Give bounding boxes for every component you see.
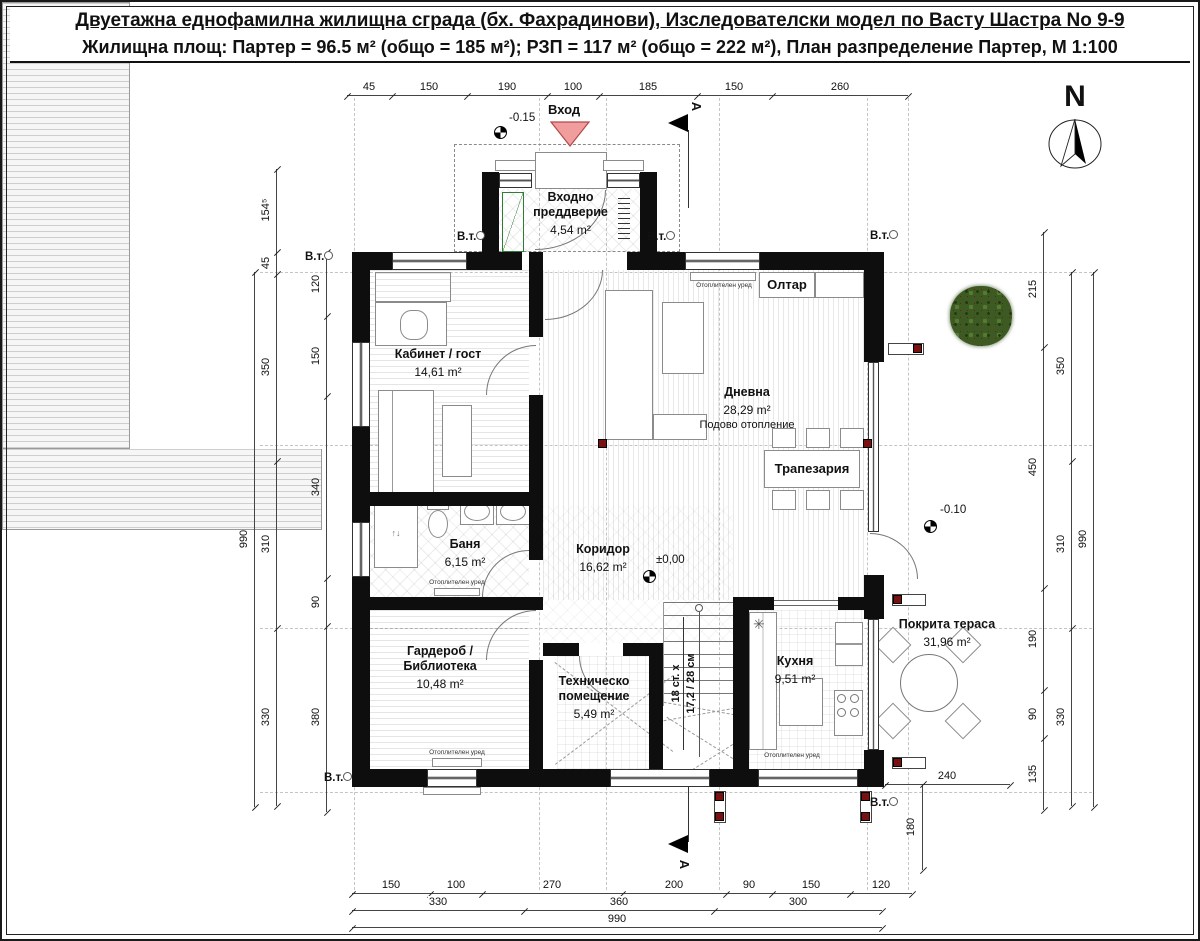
section-arrow-icon	[668, 835, 688, 853]
dim-label: 340	[310, 478, 322, 496]
dim-label: 380	[310, 708, 322, 726]
level-marker-icon	[494, 126, 507, 139]
dim-label: 240	[937, 770, 957, 782]
vt-circle-icon	[343, 772, 352, 781]
room-label-cabinet: Кабинет / гост 14,61 m²	[383, 347, 493, 379]
dining-chair	[772, 490, 796, 510]
sink-symbol-icon: ✳	[753, 616, 765, 633]
vt-marker: В.т.	[305, 251, 333, 263]
wall	[838, 597, 864, 610]
dim-label: 90	[1027, 708, 1039, 720]
entrance-label: Вход	[548, 102, 580, 117]
wall	[352, 597, 543, 610]
dim-label: 350	[1055, 357, 1067, 375]
vt-marker: В.т.	[647, 231, 675, 243]
dim-label: 360	[609, 896, 629, 908]
radiator	[434, 588, 480, 596]
wall	[529, 395, 543, 494]
desk-chair	[400, 310, 428, 340]
north-compass-icon	[1047, 116, 1103, 172]
north-compass: N	[1040, 82, 1110, 177]
radiator	[690, 272, 756, 281]
wall	[760, 252, 864, 270]
dim-line-left-mid	[276, 169, 277, 806]
terrace-table	[900, 654, 958, 712]
coffee-table	[662, 302, 704, 374]
dining-chair	[806, 490, 830, 510]
stairs-note-line1: 18 ст. x	[670, 617, 684, 750]
window	[685, 252, 760, 270]
radiator-label: Отоплителен уред	[764, 752, 820, 759]
dim-label: 215	[1027, 280, 1039, 298]
vt-marker: В.т.	[870, 797, 898, 809]
dim-line-bottom-3	[352, 927, 882, 928]
window	[499, 173, 532, 188]
dim-label: 150	[801, 879, 821, 891]
dim-label: 260	[830, 81, 850, 93]
wall	[352, 769, 427, 787]
burner	[850, 708, 859, 717]
window	[610, 769, 710, 787]
dim-label: 990	[607, 913, 627, 925]
pass-through	[774, 600, 838, 606]
altar-box: Олтар	[759, 272, 815, 298]
level-label: -0.15	[509, 112, 535, 124]
dim-label: 990	[238, 530, 250, 548]
wall	[529, 506, 543, 560]
window	[758, 769, 858, 787]
radiator	[432, 758, 482, 767]
radiator-label: Отоплителен уред	[696, 282, 752, 289]
dim-label: 150	[419, 81, 439, 93]
dim-line-left-inner	[326, 252, 327, 812]
dim-label: 45	[362, 81, 376, 93]
burner	[837, 694, 846, 703]
dim-label: 150	[310, 347, 322, 365]
dim-label: 154⁵	[260, 199, 272, 222]
dim-label: 190	[1027, 630, 1039, 648]
vt-circle-icon	[666, 231, 675, 240]
dim-label: 330	[260, 708, 272, 726]
grid-line	[908, 98, 909, 890]
drawing-sheet: Двуетажна еднофамилна жилищна сграда (бх…	[0, 0, 1200, 941]
wall	[864, 575, 884, 619]
wall	[864, 252, 884, 362]
sofa-line	[392, 391, 393, 493]
column-red	[715, 812, 724, 821]
dining-chair	[772, 428, 796, 448]
toilet-bowl	[428, 510, 448, 538]
room-label-tech: Техническо помещение 5,49 m²	[550, 674, 638, 721]
column-red	[893, 595, 902, 604]
room-label-vestibule: Входно преддверие 4,54 m²	[518, 190, 623, 237]
wall	[710, 769, 758, 787]
column-red	[861, 812, 870, 821]
dim-label: 100	[563, 81, 583, 93]
wall	[627, 252, 685, 270]
dim-line-top	[347, 95, 908, 96]
desk	[375, 272, 451, 302]
window-sill	[603, 160, 644, 171]
dim-line-bottom-2	[352, 910, 882, 911]
burner	[850, 694, 859, 703]
sheet-title: Двуетажна еднофамилна жилищна сграда (бх…	[10, 7, 1190, 34]
dim-label: 90	[742, 879, 756, 891]
column-red	[715, 792, 724, 801]
level-label: ±0,00	[656, 554, 685, 566]
wall	[733, 597, 774, 610]
window-sill	[495, 160, 536, 171]
wall	[543, 643, 579, 656]
window	[352, 342, 370, 427]
dim-label: 990	[1077, 530, 1089, 548]
dim-label: 45	[260, 257, 272, 269]
dining-chair	[806, 428, 830, 448]
vt-circle-icon	[889, 230, 898, 239]
burner	[837, 708, 846, 717]
column-red	[893, 758, 902, 767]
level-marker-icon	[924, 520, 937, 533]
door-arc-terrace	[870, 533, 918, 579]
radiator-label: Отоплителен уред	[429, 579, 485, 586]
dim-label: 310	[260, 535, 272, 553]
room-label-corridor: Коридор 16,62 m²	[567, 542, 639, 574]
dim-label: 450	[1027, 458, 1039, 476]
window	[607, 173, 640, 188]
column-red	[861, 792, 870, 801]
terrace-floor	[2, 2, 130, 449]
dim-line-right-outer	[1093, 272, 1094, 807]
vt-circle-icon	[889, 797, 898, 806]
north-label: N	[1040, 82, 1110, 112]
dim-label: 190	[497, 81, 517, 93]
dim-label: 330	[428, 896, 448, 908]
room-label-terrace: Покрита тераса 31,96 m²	[895, 617, 999, 649]
dining-chair	[840, 428, 864, 448]
wall	[352, 252, 392, 270]
room-label-bath: Баня 6,15 m²	[432, 537, 498, 569]
stairs-walkline	[699, 612, 700, 757]
dim-label: 90	[310, 596, 322, 608]
window	[427, 769, 477, 787]
wall	[352, 492, 543, 506]
level-marker-icon	[643, 570, 656, 583]
dim-label: 120	[871, 879, 891, 891]
room-label-living: Дневна 28,29 m² Подово отопление	[685, 385, 809, 431]
wall	[467, 252, 522, 270]
terrace-chair	[945, 703, 982, 740]
window-sill	[423, 787, 481, 795]
stairs-note-line2: 17,2 / 28 см	[684, 617, 697, 750]
sheet-subtitle: Жилищна площ: Партер = 96.5 м² (общо = 1…	[10, 34, 1190, 61]
dim-line-right-inner	[1043, 232, 1044, 810]
dim-label: 180	[905, 818, 917, 836]
window	[352, 522, 370, 577]
dim-label: 135	[1027, 765, 1039, 783]
sofa-large	[605, 290, 653, 440]
column-red	[913, 344, 922, 353]
entrance-landing	[535, 152, 607, 189]
room-label-kitchen: Кухня 9,51 m²	[757, 654, 833, 686]
dim-line-terrace-width	[885, 784, 1010, 785]
dining-chair	[840, 490, 864, 510]
tree-icon	[950, 286, 1012, 346]
column-red	[863, 439, 872, 448]
title-block: Двуетажна еднофамилна жилищна сграда (бх…	[10, 7, 1190, 63]
room-label-wardrobe: Гардероб / Библиотека 10,48 m²	[384, 644, 496, 691]
window	[868, 619, 879, 750]
section-label: А	[677, 860, 692, 869]
dim-label: 300	[788, 896, 808, 908]
vt-marker: В.т.	[457, 231, 485, 243]
wall	[529, 252, 543, 337]
wall	[864, 750, 884, 787]
washing-machine: ↑↓	[374, 502, 418, 568]
dim-label: 310	[1055, 535, 1067, 553]
dim-line-terrace-depth	[922, 784, 923, 870]
vt-marker: В.т.	[870, 230, 898, 242]
radiator-label: Отоплителен уред	[429, 749, 485, 756]
wall	[649, 643, 663, 769]
dining-table-label: Трапезария	[775, 461, 850, 476]
vt-circle-icon	[324, 251, 333, 260]
dim-line-right-mid	[1071, 272, 1072, 806]
wall	[529, 660, 543, 769]
dim-label: 270	[542, 879, 562, 891]
terrace-floor-south	[2, 449, 322, 530]
dim-line-left-outer	[254, 272, 255, 807]
dining-table: Трапезария	[764, 450, 860, 488]
section-arrow-icon	[668, 114, 688, 132]
grid-line	[260, 792, 1092, 793]
wall	[477, 769, 610, 787]
dim-label: 120	[310, 275, 322, 293]
vt-circle-icon	[476, 231, 485, 240]
altar-label: Олтар	[767, 277, 807, 292]
dim-label: 350	[260, 358, 272, 376]
sofa	[378, 390, 434, 494]
section-label: А	[689, 102, 704, 111]
dim-label: 150	[724, 81, 744, 93]
dim-label: 100	[446, 879, 466, 891]
dim-label: 185	[638, 81, 658, 93]
column-red	[598, 439, 607, 448]
terrace-chair	[875, 703, 912, 740]
wall	[733, 597, 749, 769]
altar-shelf	[815, 272, 864, 298]
vt-marker: В.т.	[324, 772, 352, 784]
dim-label: 330	[1055, 708, 1067, 726]
dim-line-bottom-1	[352, 893, 912, 894]
wall	[352, 270, 370, 342]
side-table	[442, 405, 472, 477]
fridge	[835, 622, 863, 666]
stairs-start-circle	[695, 604, 703, 612]
window	[392, 252, 467, 270]
section-line	[688, 130, 689, 208]
level-label: -0.10	[940, 504, 966, 516]
dim-label: 200	[664, 879, 684, 891]
entrance-arrow-icon	[550, 121, 590, 147]
dim-label: 150	[381, 879, 401, 891]
stairs-note: 18 ст. x 17,2 / 28 см	[670, 617, 697, 750]
wall	[352, 427, 370, 522]
